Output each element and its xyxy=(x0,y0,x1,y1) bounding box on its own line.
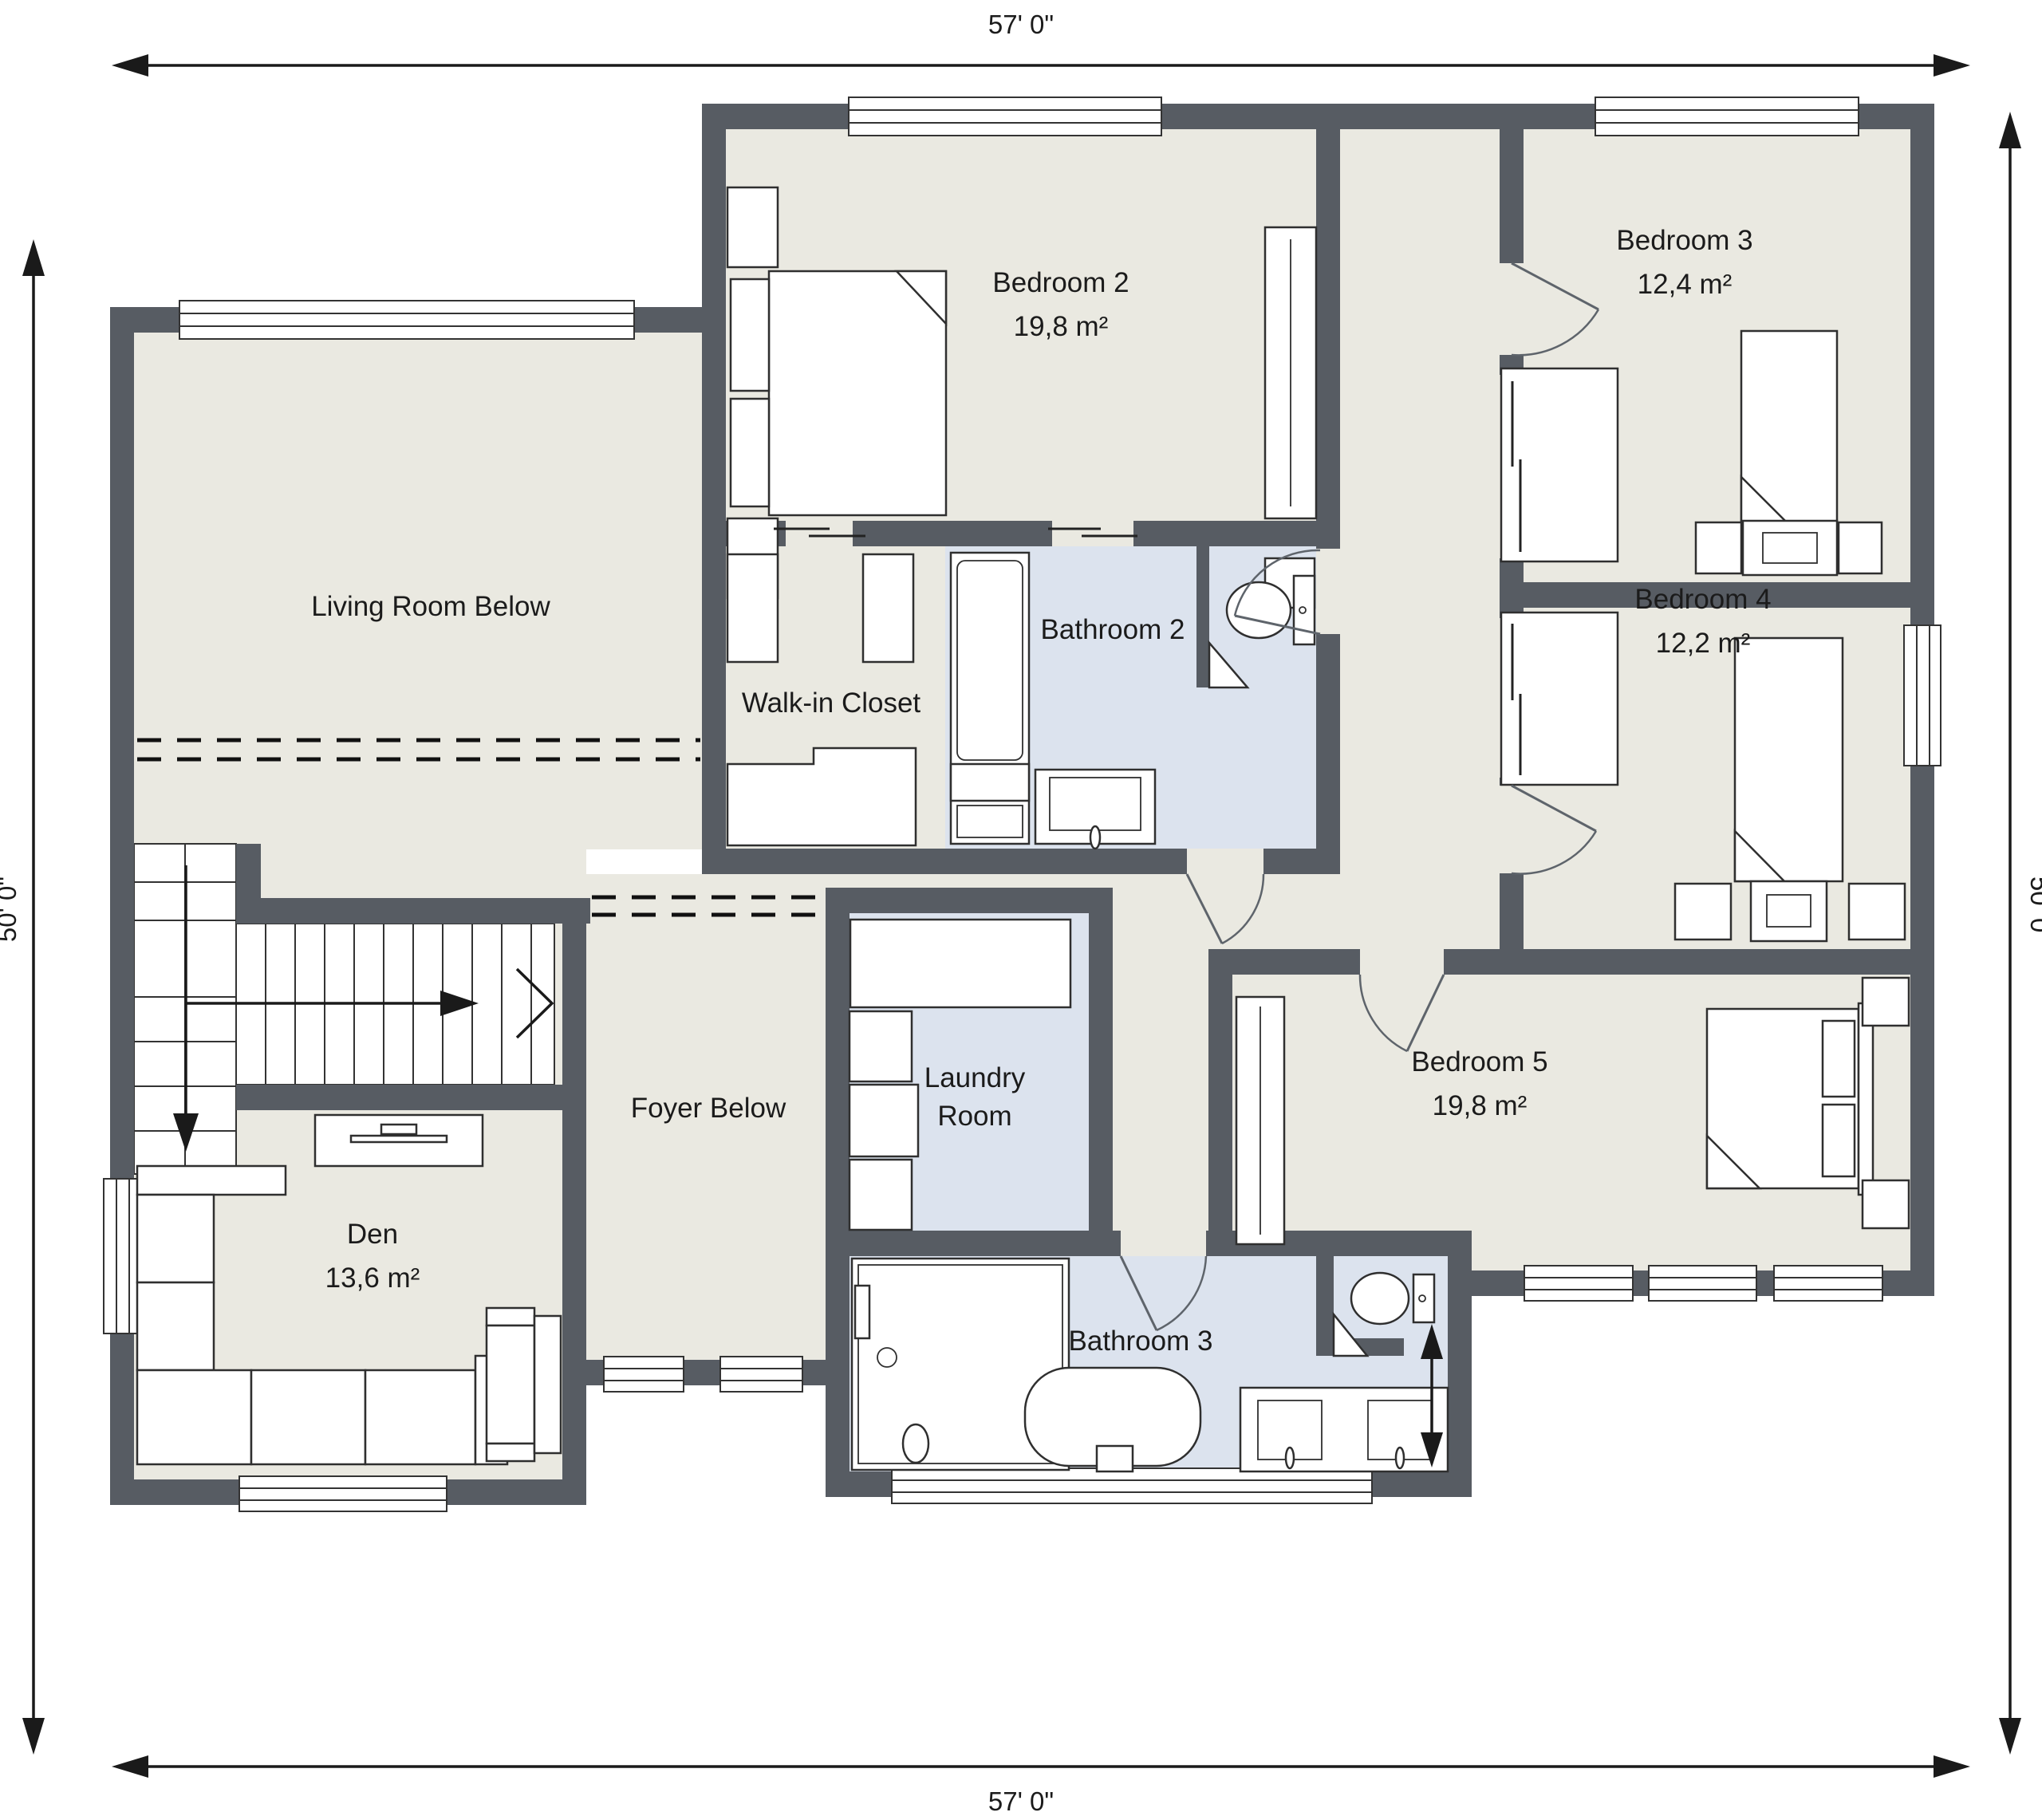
laundry-label-line2: Room xyxy=(937,1101,1011,1132)
den-bottom-window xyxy=(239,1476,447,1511)
laundry-counter xyxy=(850,920,1070,1007)
armchair-seat xyxy=(487,1326,534,1444)
washer xyxy=(850,1011,912,1081)
bedroom5-area: 19,8 m² xyxy=(1433,1090,1528,1121)
nightstand xyxy=(1839,522,1882,573)
den-side-window xyxy=(104,1179,140,1333)
sofa-seat xyxy=(137,1282,214,1370)
nightstand xyxy=(1863,978,1909,1026)
den-area: 13,6 m² xyxy=(325,1263,420,1294)
bedroom5-label: Bedroom 5 xyxy=(1411,1046,1547,1077)
sofa-seat xyxy=(251,1370,365,1464)
bath3-corridor-floor xyxy=(1113,913,1208,1256)
sofa-armrest xyxy=(137,1166,286,1195)
toilet-bowl xyxy=(1351,1273,1409,1324)
laundry-label-line1: Laundry xyxy=(924,1062,1026,1093)
bedroom2-label: Bedroom 2 xyxy=(992,267,1129,298)
bathroom2-label: Bathroom 2 xyxy=(1041,614,1185,645)
shower-handle xyxy=(903,1424,928,1463)
living-room-floor xyxy=(134,331,726,849)
living-room-label: Living Room Below xyxy=(311,591,550,622)
dimension-bottom-label: 57' 0" xyxy=(988,1787,1054,1816)
foot-dresser xyxy=(1751,881,1827,941)
tv xyxy=(351,1136,447,1142)
nightstand xyxy=(727,187,778,267)
bedroom4-area: 12,2 m² xyxy=(1656,628,1751,659)
pillow xyxy=(731,279,769,391)
dimension-left: 50' 0" xyxy=(0,239,45,1755)
closet-cabinet xyxy=(863,554,913,662)
toilet-tank xyxy=(1294,576,1315,644)
dryer xyxy=(850,1085,918,1156)
pillow xyxy=(1823,1021,1855,1097)
bedroom4-window xyxy=(1904,625,1941,766)
pillow xyxy=(731,399,769,506)
foot-dresser xyxy=(1743,521,1837,575)
floor-plan-page: 57' 0" 57' 0" 50' 0" 50' 0" Living Room … xyxy=(0,0,2042,1820)
bedroom2-area: 19,8 m² xyxy=(1014,311,1109,342)
bedroom3-area: 12,4 m² xyxy=(1638,269,1733,300)
faucet xyxy=(1286,1448,1294,1468)
bedroom5-windows xyxy=(1524,1266,1882,1301)
bedroom3-label: Bedroom 3 xyxy=(1616,225,1752,256)
walk-in-closet-label: Walk-in Closet xyxy=(742,687,921,719)
dimension-top: 57' 0" xyxy=(112,10,1970,77)
closet-cabinet xyxy=(727,554,778,662)
foyer-label: Foyer Below xyxy=(631,1093,786,1124)
shower-valve xyxy=(855,1286,869,1338)
bathroom3-label: Bathroom 3 xyxy=(1069,1326,1213,1357)
closet-bedroom4 xyxy=(1501,613,1618,785)
toilet-tank xyxy=(1413,1274,1434,1322)
nightstand xyxy=(1863,1180,1909,1228)
bedroom4-label: Bedroom 4 xyxy=(1634,584,1771,615)
headboard xyxy=(1859,1003,1873,1195)
armchair-back xyxy=(534,1316,561,1453)
armchair-arm xyxy=(487,1308,534,1326)
bedroom2-window xyxy=(849,97,1161,136)
dimension-right-label: 50' 0" xyxy=(2025,877,2042,942)
armchair-arm xyxy=(487,1444,534,1461)
bath2-toilet-partition xyxy=(1196,546,1209,687)
den-label: Den xyxy=(347,1219,398,1250)
sofa-seat xyxy=(137,1370,251,1464)
bedroom3-window xyxy=(1595,97,1859,136)
bathroom3-window xyxy=(892,1468,1372,1503)
double-bed xyxy=(769,271,946,515)
tub-step xyxy=(1097,1446,1133,1471)
dimension-top-label: 57' 0" xyxy=(988,10,1054,39)
hallway-floor xyxy=(1340,129,1500,975)
single-bed xyxy=(1735,638,1843,881)
nightstand xyxy=(1696,522,1741,573)
laundry-cabinet xyxy=(850,1160,912,1230)
floor-plan-drawing: 57' 0" 57' 0" 50' 0" 50' 0" Living Room … xyxy=(0,0,2042,1820)
faucet xyxy=(1090,826,1100,849)
living-room-window xyxy=(179,301,634,339)
bedroom5-floor-south xyxy=(1448,1231,1910,1270)
nightstand xyxy=(1849,884,1905,940)
nightstand xyxy=(1675,884,1731,940)
faucet xyxy=(1396,1448,1404,1468)
tv-stand xyxy=(381,1125,416,1134)
dimension-bottom: 57' 0" xyxy=(112,1755,1970,1816)
sofa-seat xyxy=(137,1195,214,1282)
pillow xyxy=(1823,1105,1855,1176)
closet-bedroom3 xyxy=(1501,368,1618,561)
dimension-right: 50' 0" xyxy=(1999,112,2042,1755)
dimension-left-label: 50' 0" xyxy=(0,877,22,942)
sofa-seat xyxy=(365,1370,475,1464)
